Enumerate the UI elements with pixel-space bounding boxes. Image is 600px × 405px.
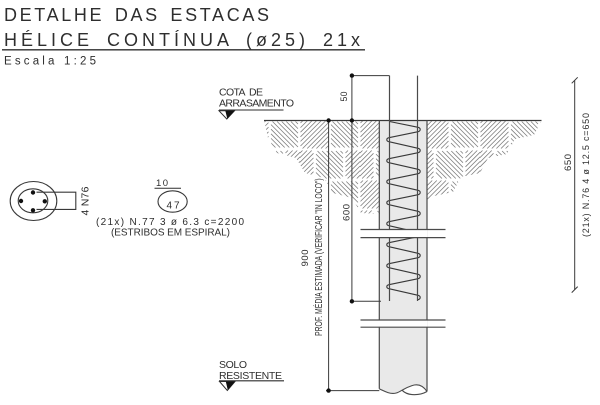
svg-text:900: 900 xyxy=(300,250,311,267)
svg-text:ARRASAMENTO: ARRASAMENTO xyxy=(219,98,294,110)
svg-text:650: 650 xyxy=(563,154,574,171)
svg-text:600: 600 xyxy=(342,204,353,221)
svg-text:PROF. MÉDIA ESTIMADA (VERIFICA: PROF. MÉDIA ESTIMADA (VERIFICAR "IN LOCO… xyxy=(313,178,325,336)
svg-text:50: 50 xyxy=(339,91,349,101)
svg-text:(21x) N.77 3 ø 6.3 c=2200: (21x) N.77 3 ø 6.3 c=2200 xyxy=(96,217,244,228)
svg-text:(ESTRIBOS EM ESPIRAL): (ESTRIBOS EM ESPIRAL) xyxy=(111,228,230,239)
svg-text:HÉLICE CONTÍNUA (ø25) 21x: HÉLICE CONTÍNUA (ø25) 21x xyxy=(4,30,360,50)
svg-text:(21x) N.76 4 ø 12.5 c=650: (21x) N.76 4 ø 12.5 c=650 xyxy=(581,113,591,237)
svg-text:Escala 1:25: Escala 1:25 xyxy=(4,56,96,68)
svg-text:DETALHE DAS ESTACAS: DETALHE DAS ESTACAS xyxy=(4,5,269,25)
svg-text:4 N76: 4 N76 xyxy=(80,186,92,215)
svg-text:10: 10 xyxy=(156,178,168,189)
svg-text:47: 47 xyxy=(167,201,180,212)
svg-text:RESISTENTE: RESISTENTE xyxy=(219,370,282,382)
